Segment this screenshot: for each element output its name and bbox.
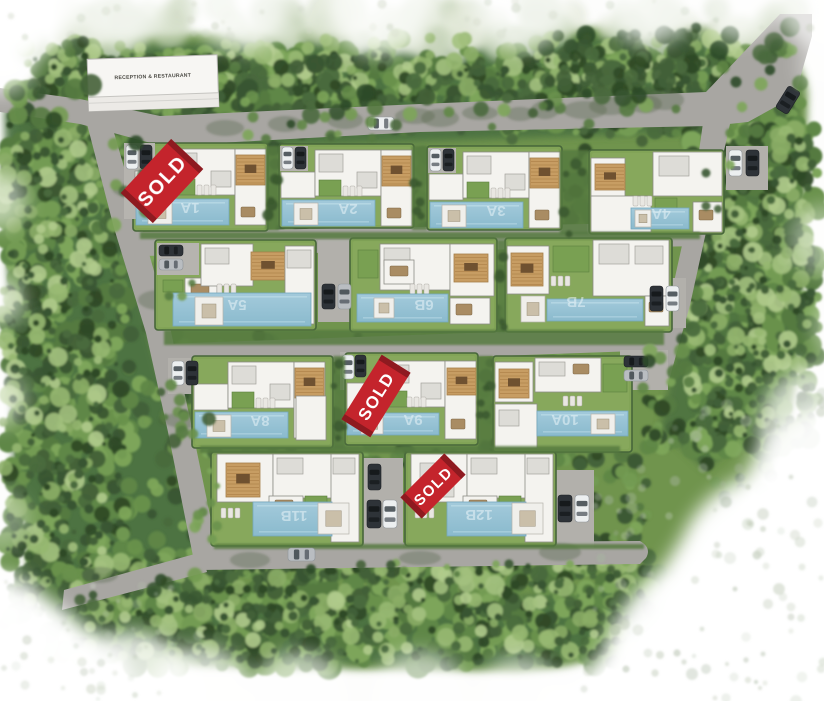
svg-text:10A: 10A bbox=[551, 411, 579, 428]
svg-text:7B: 7B bbox=[566, 293, 585, 310]
svg-text:6B: 6B bbox=[414, 296, 433, 313]
svg-text:3A: 3A bbox=[486, 202, 505, 219]
svg-text:8A: 8A bbox=[250, 412, 269, 429]
svg-text:1A: 1A bbox=[180, 199, 199, 216]
svg-text:4A: 4A bbox=[651, 205, 670, 222]
svg-text:9A: 9A bbox=[403, 411, 422, 428]
svg-text:5A: 5A bbox=[227, 296, 246, 313]
svg-text:2A: 2A bbox=[338, 200, 357, 217]
svg-text:11B: 11B bbox=[280, 507, 307, 524]
svg-text:12B: 12B bbox=[465, 506, 493, 523]
